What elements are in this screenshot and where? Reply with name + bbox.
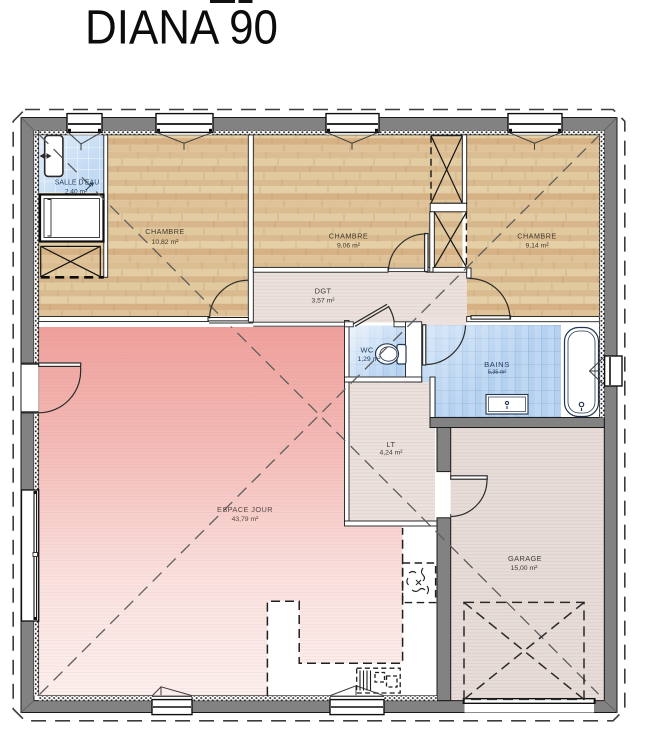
svg-text:CHAMBRE: CHAMBRE [517,232,556,241]
svg-text:43,79 m²: 43,79 m² [232,516,260,523]
svg-text:CHAMBRE: CHAMBRE [329,232,368,241]
svg-text:9,06 m²: 9,06 m² [337,243,361,250]
svg-text:9,14 m²: 9,14 m² [525,243,549,250]
svg-text:DGT: DGT [315,287,332,296]
svg-text:4,24 m²: 4,24 m² [379,450,403,457]
svg-text:5,35 m²: 5,35 m² [488,370,506,376]
svg-text:CHAMBRE: CHAMBRE [145,227,184,236]
svg-text:LT: LT [387,440,396,449]
svg-text:DIANA 90: DIANA 90 [85,2,278,55]
svg-text:GARAGE: GARAGE [508,554,542,563]
svg-text:2,40 m²: 2,40 m² [65,189,88,196]
svg-text:15,00 m²: 15,00 m² [511,565,539,572]
svg-text:10,82 m²: 10,82 m² [152,239,180,246]
svg-text:WC: WC [360,346,373,355]
svg-text:BAINS: BAINS [484,360,510,369]
svg-text:3,57 m²: 3,57 m² [311,298,335,305]
svg-text:1,29 m²: 1,29 m² [357,356,381,363]
svg-text:ESPACE JOUR: ESPACE JOUR [217,505,273,514]
